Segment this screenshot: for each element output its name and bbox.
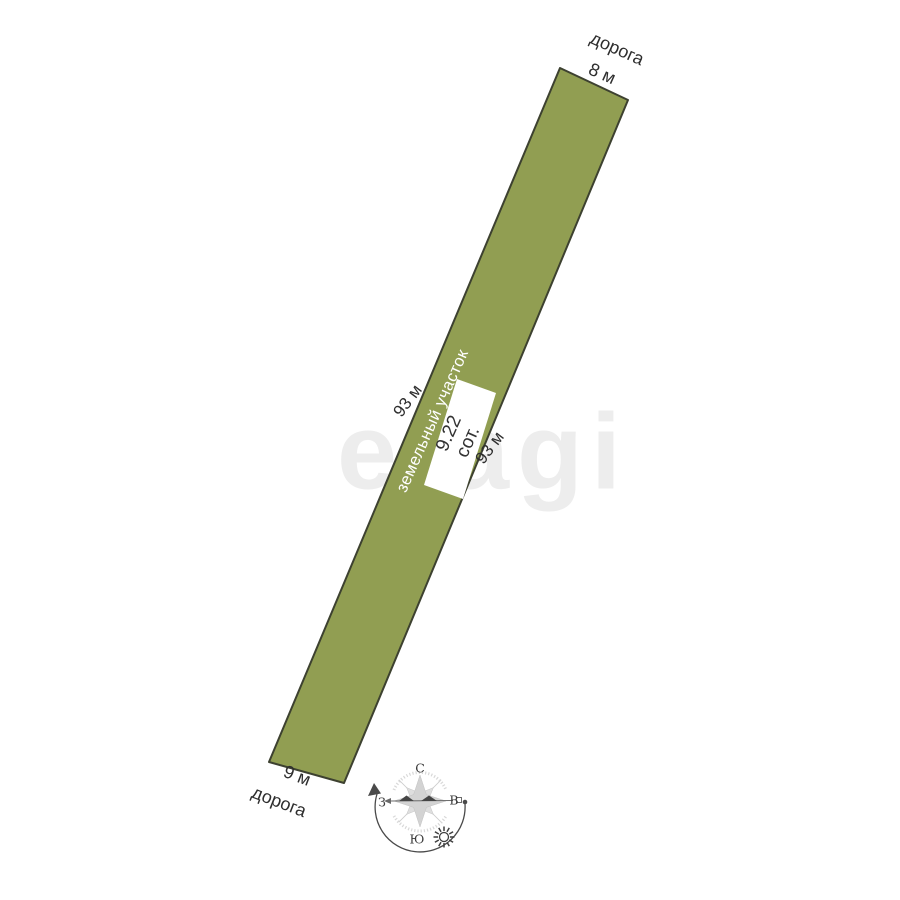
- sun-icon: [434, 827, 455, 848]
- compass-north-label: С: [415, 761, 425, 776]
- sun-path-start-dot: [463, 800, 468, 805]
- compass-south-label: Ю: [410, 832, 425, 847]
- compass-west-label: З: [378, 795, 386, 810]
- land-plot-diagram: etagi: [0, 0, 900, 900]
- compass-east-label: В: [449, 793, 458, 808]
- compass-rose: С Ю З В: [368, 761, 467, 852]
